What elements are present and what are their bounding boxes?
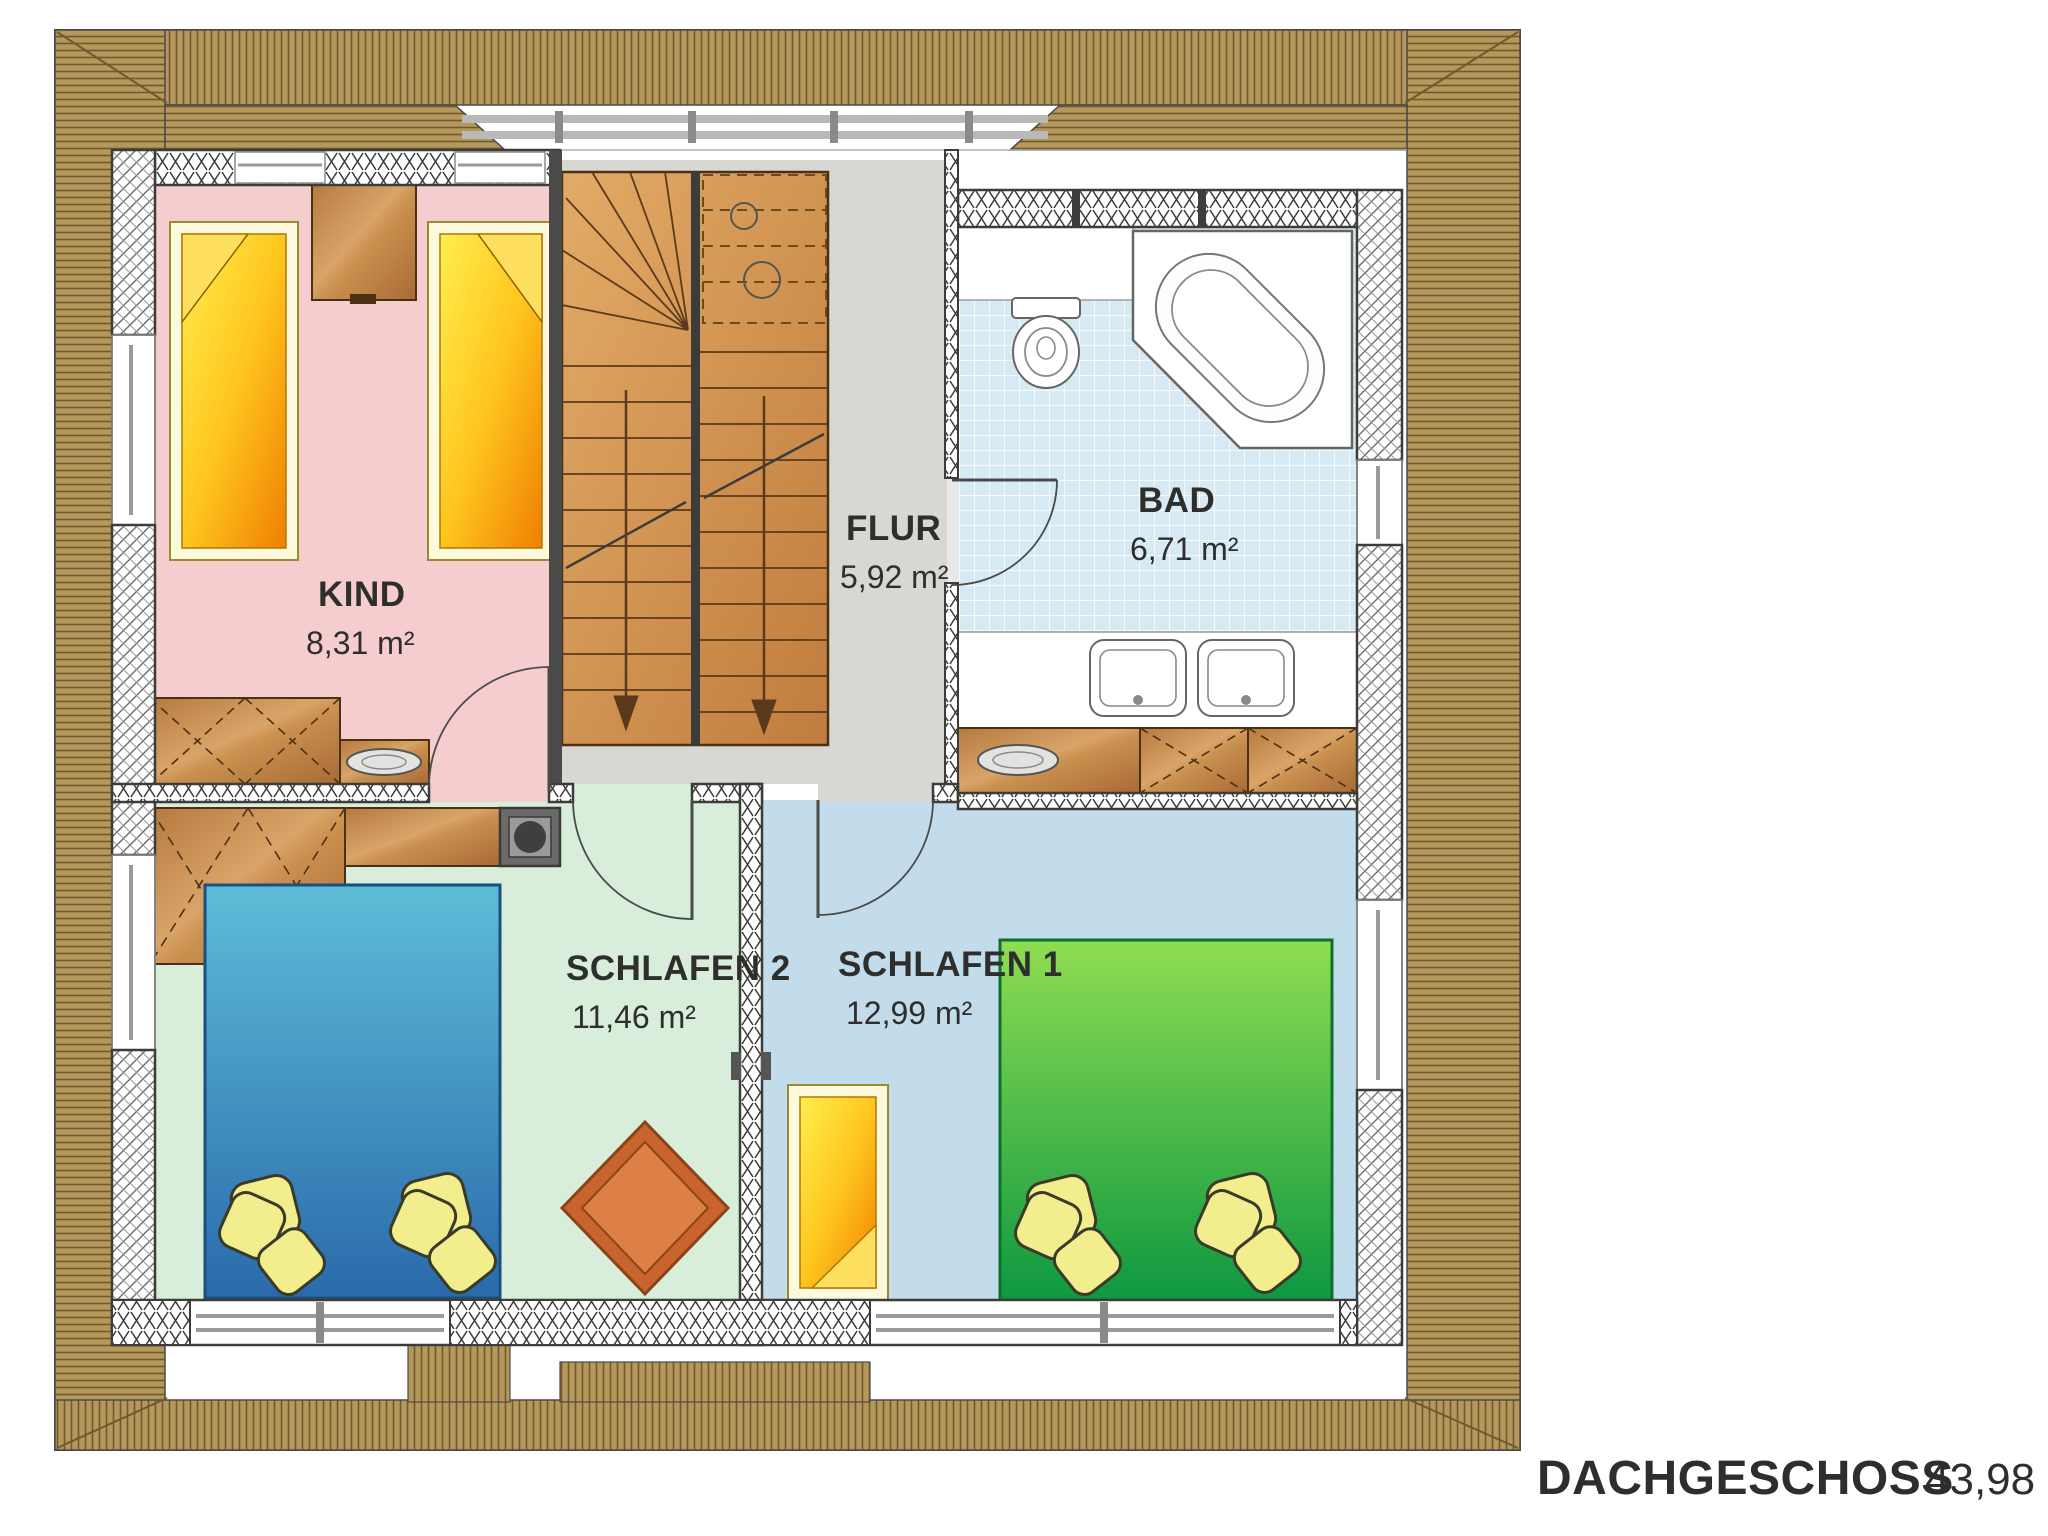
bath-cabinets [958, 728, 1357, 793]
double-bed-blue [205, 885, 501, 1300]
bowl-dish [347, 749, 421, 775]
window-kind-top [235, 152, 325, 183]
nightstand [312, 182, 416, 304]
knee-wall-shelf [958, 227, 1133, 300]
staircase [562, 172, 828, 745]
wall-schlafen2-schlafen1 [740, 784, 762, 1345]
label-flur: FLUR [846, 509, 941, 548]
washbasin-left [1090, 640, 1186, 716]
label-bad: BAD [1138, 481, 1215, 520]
wall-kind-schlafen2 [112, 784, 429, 802]
roof-band-right [1407, 30, 1520, 1450]
sideboard-schlafen2 [345, 808, 500, 866]
title-floor-name: DACHGESCHOSS [1537, 1452, 1954, 1505]
toilet [1012, 298, 1080, 388]
area-schlafen2: 11,46 m² [572, 999, 696, 1035]
area-flur: 5,92 m² [840, 559, 949, 595]
bed-single-yellow [788, 1085, 888, 1300]
floor-plan-drawing: KIND 8,31 m² FLUR 5,92 m² BAD 6,71 m² SC… [0, 0, 2048, 1536]
label-schlafen2: SCHLAFEN 2 [566, 949, 791, 988]
vent-shaft [500, 808, 560, 866]
sideboard-kind [340, 740, 429, 784]
wall-bad-schlafen1 [958, 793, 1357, 809]
plan-title: DACHGESCHOSS 43,98 m² [1537, 1452, 2048, 1505]
dormer-flank-right [1010, 105, 1407, 150]
label-schlafen1: SCHLAFEN 1 [838, 945, 1063, 984]
title-floor-area: 43,98 m² [1925, 1455, 2048, 1504]
area-bad: 6,71 m² [1130, 531, 1239, 567]
bowl-dish [978, 745, 1058, 775]
window-kind-top-2 [455, 152, 545, 183]
label-kind: KIND [318, 575, 406, 614]
dormer-cheek-bottom [408, 1345, 510, 1402]
roof-band-top [55, 30, 1520, 105]
window-kind-left [112, 335, 155, 525]
floor-plan-page: KIND 8,31 m² FLUR 5,92 m² BAD 6,71 m² SC… [0, 0, 2048, 1536]
wardrobe-kind [150, 698, 340, 784]
roof-band-bottom [55, 1400, 1520, 1450]
wall-kind-stair [549, 150, 562, 784]
area-kind: 8,31 m² [306, 625, 415, 661]
bed-single-right [428, 222, 554, 560]
double-bed-green [1000, 940, 1332, 1300]
bed-single-left [170, 222, 298, 560]
dormer-flank-left [165, 105, 505, 150]
window-schlafen2-left [112, 855, 155, 1050]
stair-divider-wall [691, 172, 700, 745]
area-schlafen1: 12,99 m² [846, 995, 973, 1031]
washbasin-right [1198, 640, 1294, 716]
